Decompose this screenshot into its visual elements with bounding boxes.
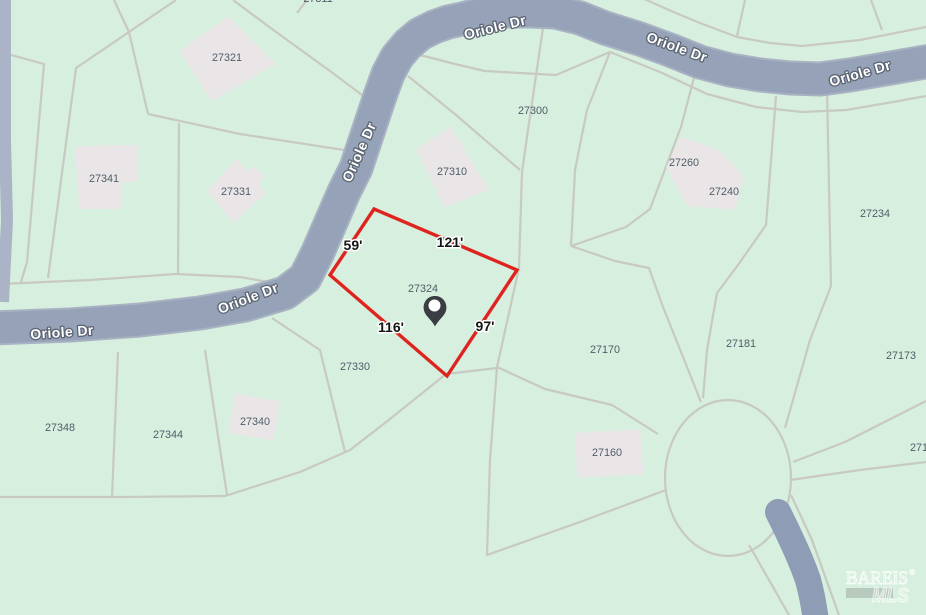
svg-text:27311: 27311 bbox=[303, 0, 332, 5]
svg-text:27173: 27173 bbox=[886, 350, 916, 362]
svg-text:27170: 27170 bbox=[590, 344, 620, 356]
svg-text:27260: 27260 bbox=[669, 157, 699, 169]
svg-text:116': 116' bbox=[378, 319, 404, 335]
svg-text:121': 121' bbox=[437, 234, 464, 250]
svg-text:27181: 27181 bbox=[726, 338, 756, 350]
svg-text:27324: 27324 bbox=[408, 283, 438, 295]
svg-text:27164: 27164 bbox=[910, 442, 926, 454]
svg-text:27341: 27341 bbox=[89, 173, 119, 185]
svg-text:59': 59' bbox=[344, 237, 363, 253]
svg-text:27310: 27310 bbox=[437, 166, 467, 178]
svg-text:®: ® bbox=[909, 568, 915, 577]
svg-text:MLS: MLS bbox=[872, 585, 910, 607]
svg-text:27344: 27344 bbox=[153, 429, 183, 441]
svg-text:27240: 27240 bbox=[709, 186, 739, 198]
svg-text:27331: 27331 bbox=[221, 186, 251, 198]
svg-text:27160: 27160 bbox=[592, 447, 622, 459]
svg-text:27321: 27321 bbox=[212, 52, 242, 64]
svg-text:27330: 27330 bbox=[340, 361, 370, 373]
svg-text:27348: 27348 bbox=[45, 422, 75, 434]
svg-text:27234: 27234 bbox=[860, 208, 890, 220]
svg-text:97': 97' bbox=[476, 318, 495, 334]
svg-text:27340: 27340 bbox=[240, 416, 270, 428]
svg-text:27300: 27300 bbox=[518, 105, 548, 117]
